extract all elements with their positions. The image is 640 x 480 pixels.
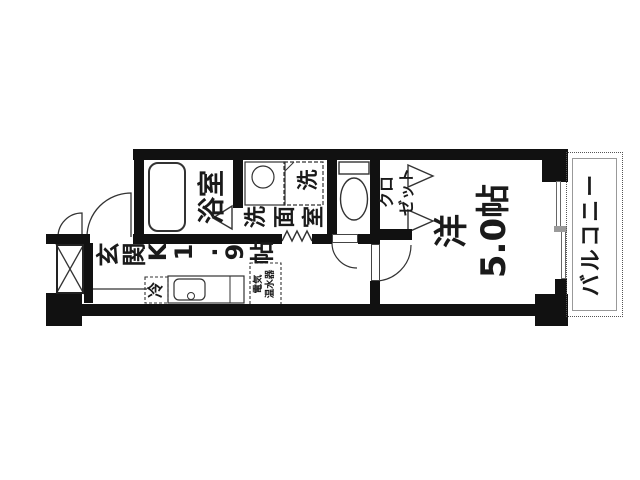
pillar [46, 293, 82, 326]
toilet-door-leaf [332, 234, 358, 243]
pillar [535, 294, 568, 326]
entrance-door-arc [87, 193, 131, 237]
genkan-label: 玄 関 [94, 241, 144, 268]
toilet-door-arc [332, 243, 357, 268]
wall-bathroom-left [134, 149, 144, 244]
toilet-bowl-icon [341, 178, 368, 220]
toilet-tank-icon [339, 162, 369, 174]
folding-door-icon [282, 231, 312, 241]
washer-label: 洗 [296, 168, 320, 192]
kitchen-label: K 1 . 9 帖 [146, 238, 272, 266]
pillar [542, 149, 568, 182]
bathtub-icon [149, 163, 185, 231]
room-door-arc [375, 245, 411, 281]
balcony-label: バルコニー [580, 169, 604, 299]
bathroom-label: 浴室 [197, 167, 229, 227]
room-door-leaf [371, 244, 380, 281]
wall-band-divider [312, 234, 332, 244]
wall-bath-wash [233, 149, 243, 208]
tap-mark-icon [285, 162, 294, 171]
wall-band-divider [358, 234, 380, 244]
western-room-label: 洋 5.0帖 [431, 156, 515, 306]
washroom-label: 洗 面 室 [243, 204, 323, 230]
water-heater-label: 電気 温水器 [253, 269, 277, 299]
sink-icon [174, 279, 205, 300]
closet-label: クロ ゼット [377, 164, 417, 220]
meter-box [56, 244, 84, 294]
fridge-label: 冷 [147, 281, 165, 299]
wall-wash-toilet [327, 149, 337, 243]
window-pane [556, 181, 561, 229]
floorplan: 浴室 クロ ゼット 洋 5.0帖 バルコニー 電気 温水器 洗 冷 玄 関 K … [0, 0, 640, 480]
washbasin-icon [245, 162, 285, 205]
